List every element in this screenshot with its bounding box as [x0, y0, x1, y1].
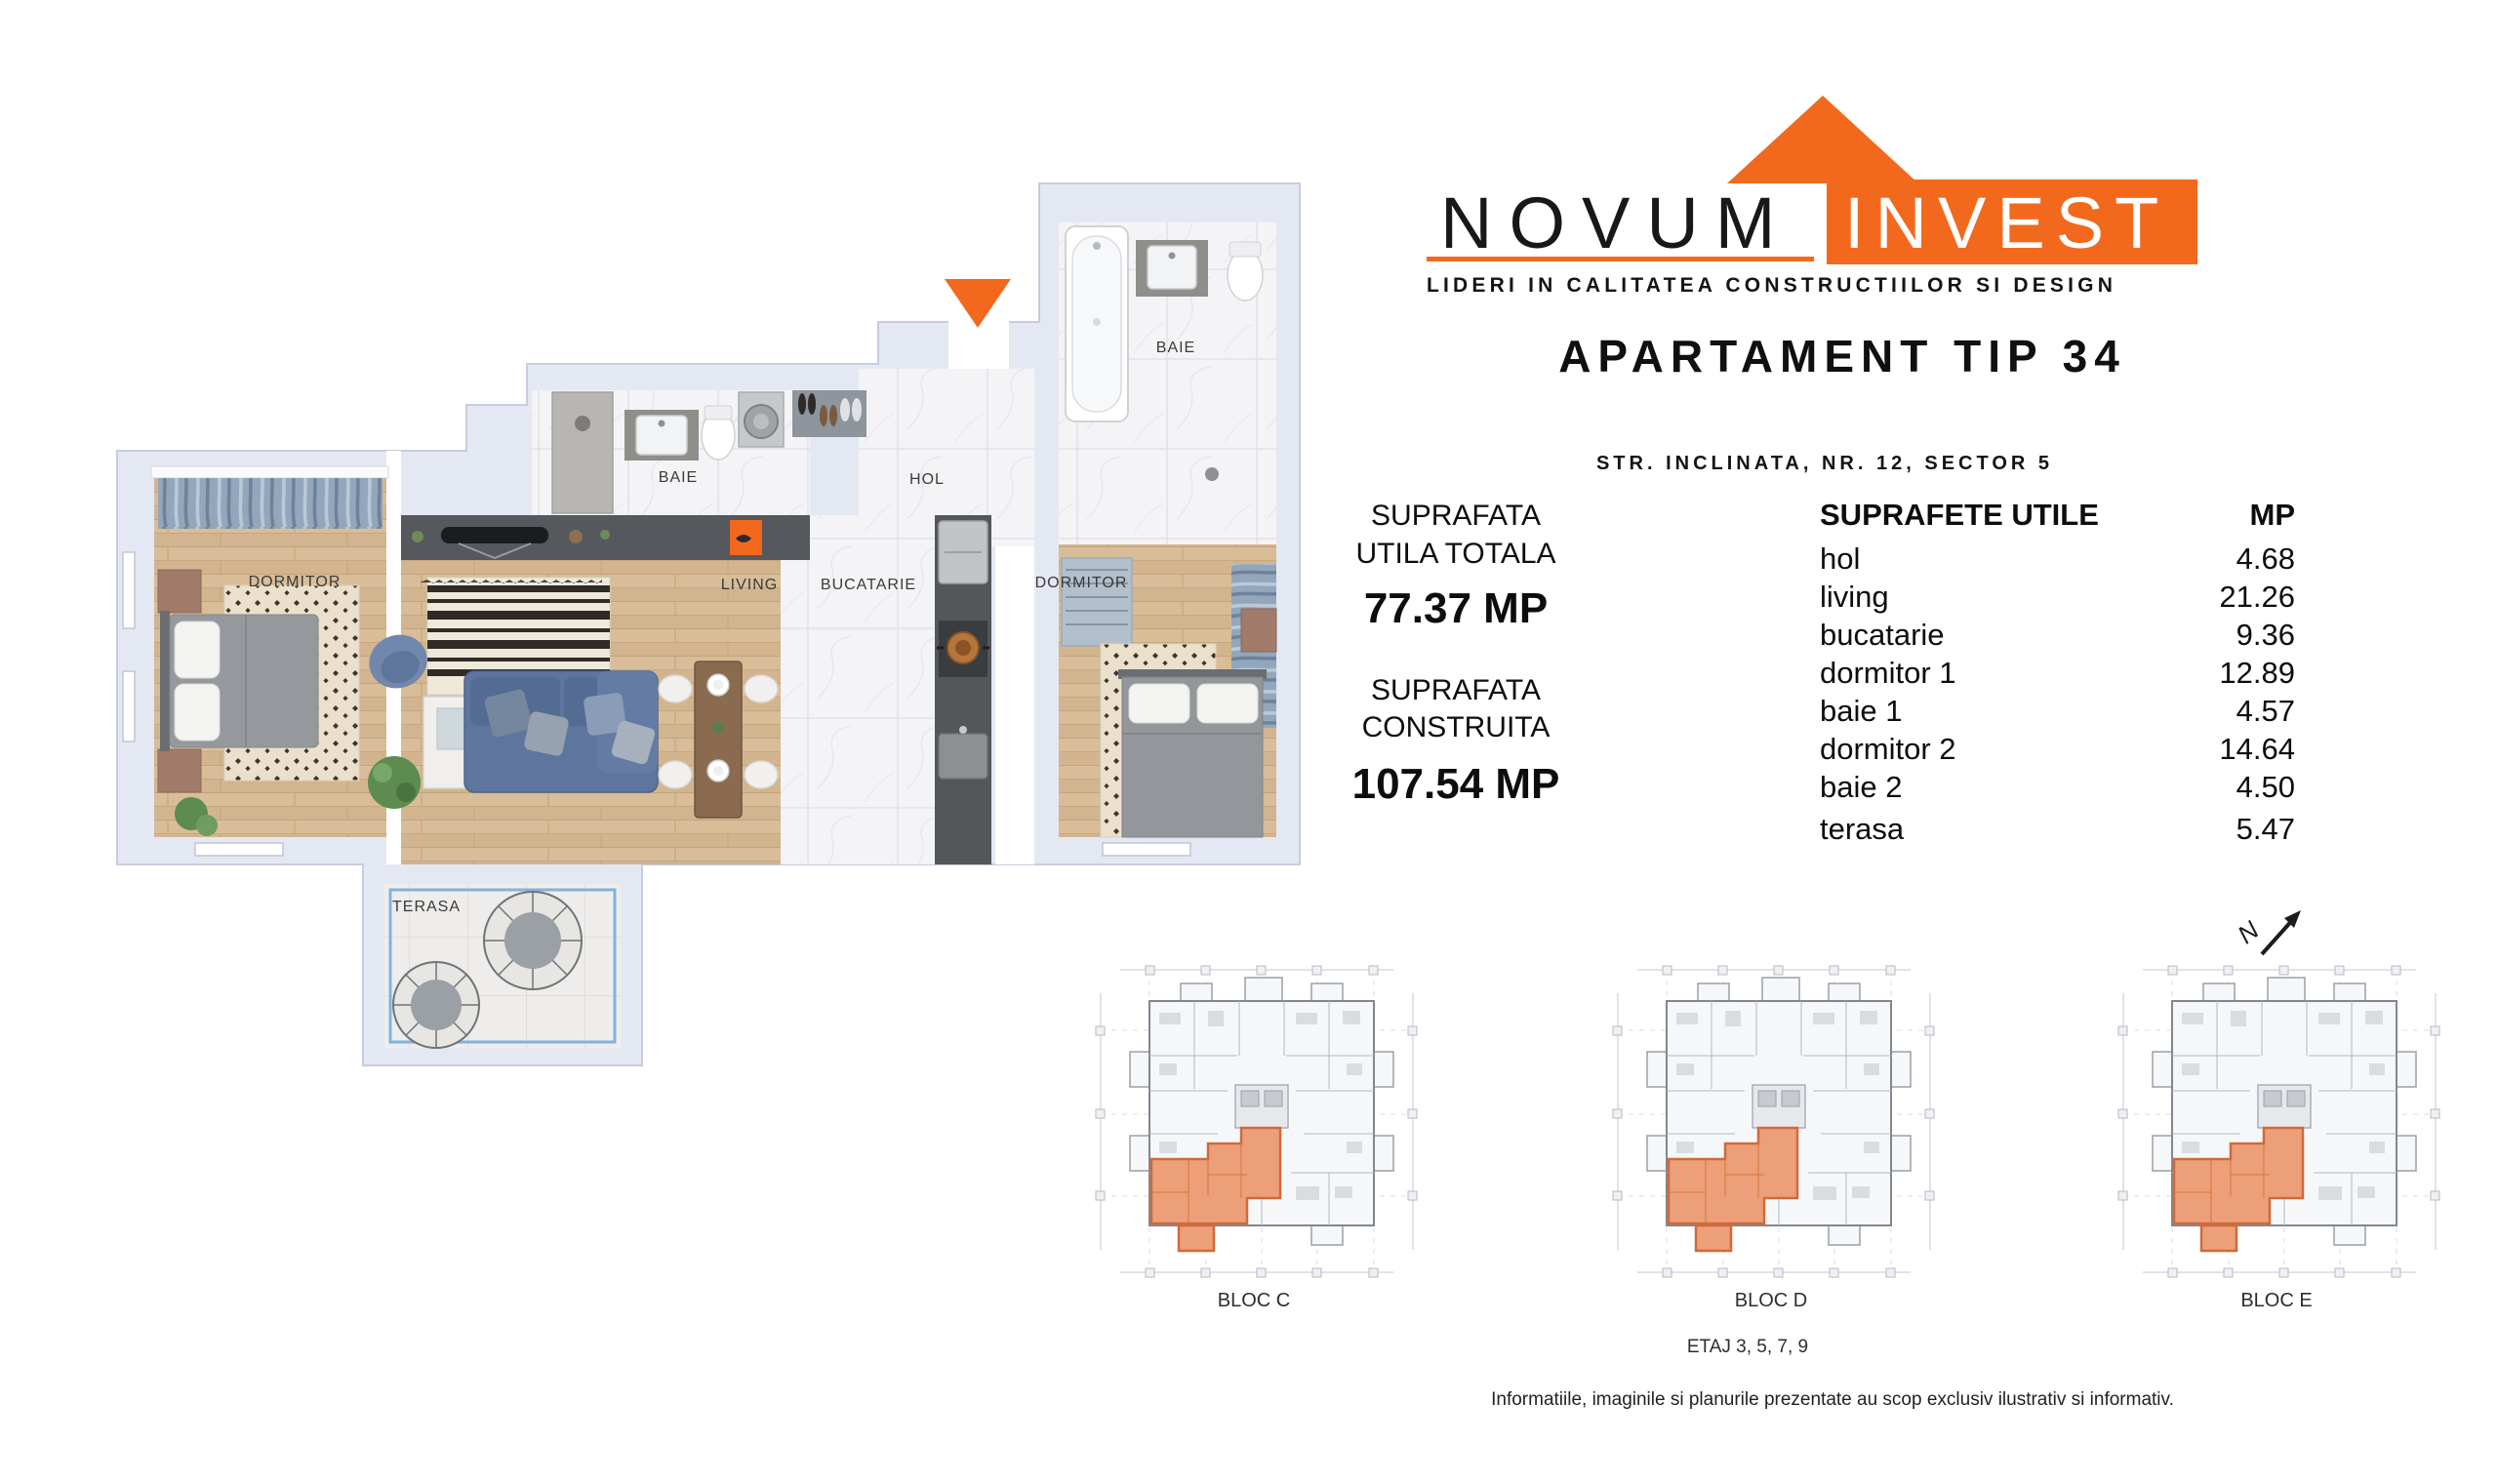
table-row: dormitor 1 12.89 [1820, 654, 2295, 692]
room-label-living: LIVING [721, 577, 778, 594]
north-arrow-icon: N [2232, 910, 2301, 954]
useful-area-label-1: SUPRAFATA [1339, 500, 1573, 533]
useful-area-label-2: UTILA TOTALA [1339, 538, 1573, 571]
table-row: terasa 5.47 [1820, 810, 2295, 848]
page: N DORMITOR BAIE HOL LIVING BUCATARIE DOR… [0, 0, 2498, 1484]
row-name: baie 1 [1820, 692, 1902, 730]
logo-tagline: LIDERI IN CALITATEA CONSTRUCTIILOR SI DE… [1427, 274, 2116, 298]
row-name: dormitor 1 [1820, 654, 1956, 692]
row-name: living [1820, 578, 1889, 616]
disclaimer: Informatiile, imaginile si planurile pre… [1442, 1389, 2223, 1411]
floors-note: ETAJ 3, 5, 7, 9 [1650, 1337, 1845, 1358]
bloc-d-label: BLOC D [1673, 1290, 1869, 1312]
row-value: 12.89 [2219, 654, 2295, 692]
bloc-c-label: BLOC C [1156, 1290, 1351, 1312]
room-label-terasa: TERASA [392, 899, 461, 916]
table-row: hol 4.68 [1820, 540, 2295, 578]
areas-table: SUPRAFETE UTILE MP hol 4.68 living 21.26… [1820, 498, 2295, 848]
address-line: STR. INCLINATA, NR. 12, SECTOR 5 [1532, 453, 2117, 475]
kitchen-fixtures [935, 515, 991, 864]
mini-plan-bloc-d [1613, 966, 1934, 1277]
built-area-label-2: CONSTRUITA [1339, 711, 1573, 744]
row-value: 9.36 [2236, 616, 2295, 654]
areas-header-label: SUPRAFETE UTILE [1820, 498, 2099, 540]
page-title: APARTAMENT TIP 34 [1528, 330, 2156, 382]
built-area-value: 107.54 MP [1339, 761, 1573, 808]
row-value: 21.26 [2219, 578, 2295, 616]
row-value: 4.57 [2236, 692, 2295, 730]
row-name: terasa [1820, 810, 1904, 848]
areas-header-unit: MP [2250, 498, 2296, 540]
logo-roof-arrow-icon [1727, 94, 1920, 183]
row-name: hol [1820, 540, 1860, 578]
areas-table-header: SUPRAFETE UTILE MP [1820, 498, 2295, 540]
room-label-baie2: BAIE [1156, 340, 1195, 357]
mini-plan-bloc-e [2118, 966, 2439, 1277]
table-row: dormitor 2 14.64 [1820, 730, 2295, 768]
logo-underline [1427, 257, 1814, 261]
logo-text-invest: INVEST [1844, 187, 2169, 260]
row-name: bucatarie [1820, 616, 1945, 654]
table-row: living 21.26 [1820, 578, 2295, 616]
bloc-e-label: BLOC E [2179, 1290, 2374, 1312]
logo-text-novum: NOVUM [1440, 187, 1792, 260]
row-name: baie 2 [1820, 768, 1902, 806]
table-row: baie 1 4.57 [1820, 692, 2295, 730]
row-value: 4.50 [2236, 768, 2295, 806]
room-label-hol: HOL [909, 471, 945, 489]
room-label-bucatarie: BUCATARIE [821, 577, 916, 594]
row-value: 14.64 [2219, 730, 2295, 768]
room-label-dormitor1: DORMITOR [249, 574, 342, 591]
svg-text:N: N [2232, 915, 2264, 949]
mini-plan-bloc-c [1096, 966, 1417, 1277]
table-row: baie 2 4.50 [1820, 768, 2295, 806]
row-name: dormitor 2 [1820, 730, 1956, 768]
built-area-label-1: SUPRAFATA [1339, 674, 1573, 707]
row-value: 4.68 [2236, 540, 2295, 578]
table-row: bucatarie 9.36 [1820, 616, 2295, 654]
row-value: 5.47 [2236, 810, 2295, 848]
useful-area-value: 77.37 MP [1339, 585, 1573, 632]
room-label-dormitor2: DORMITOR [1035, 575, 1128, 592]
room-label-baie1: BAIE [659, 469, 698, 487]
